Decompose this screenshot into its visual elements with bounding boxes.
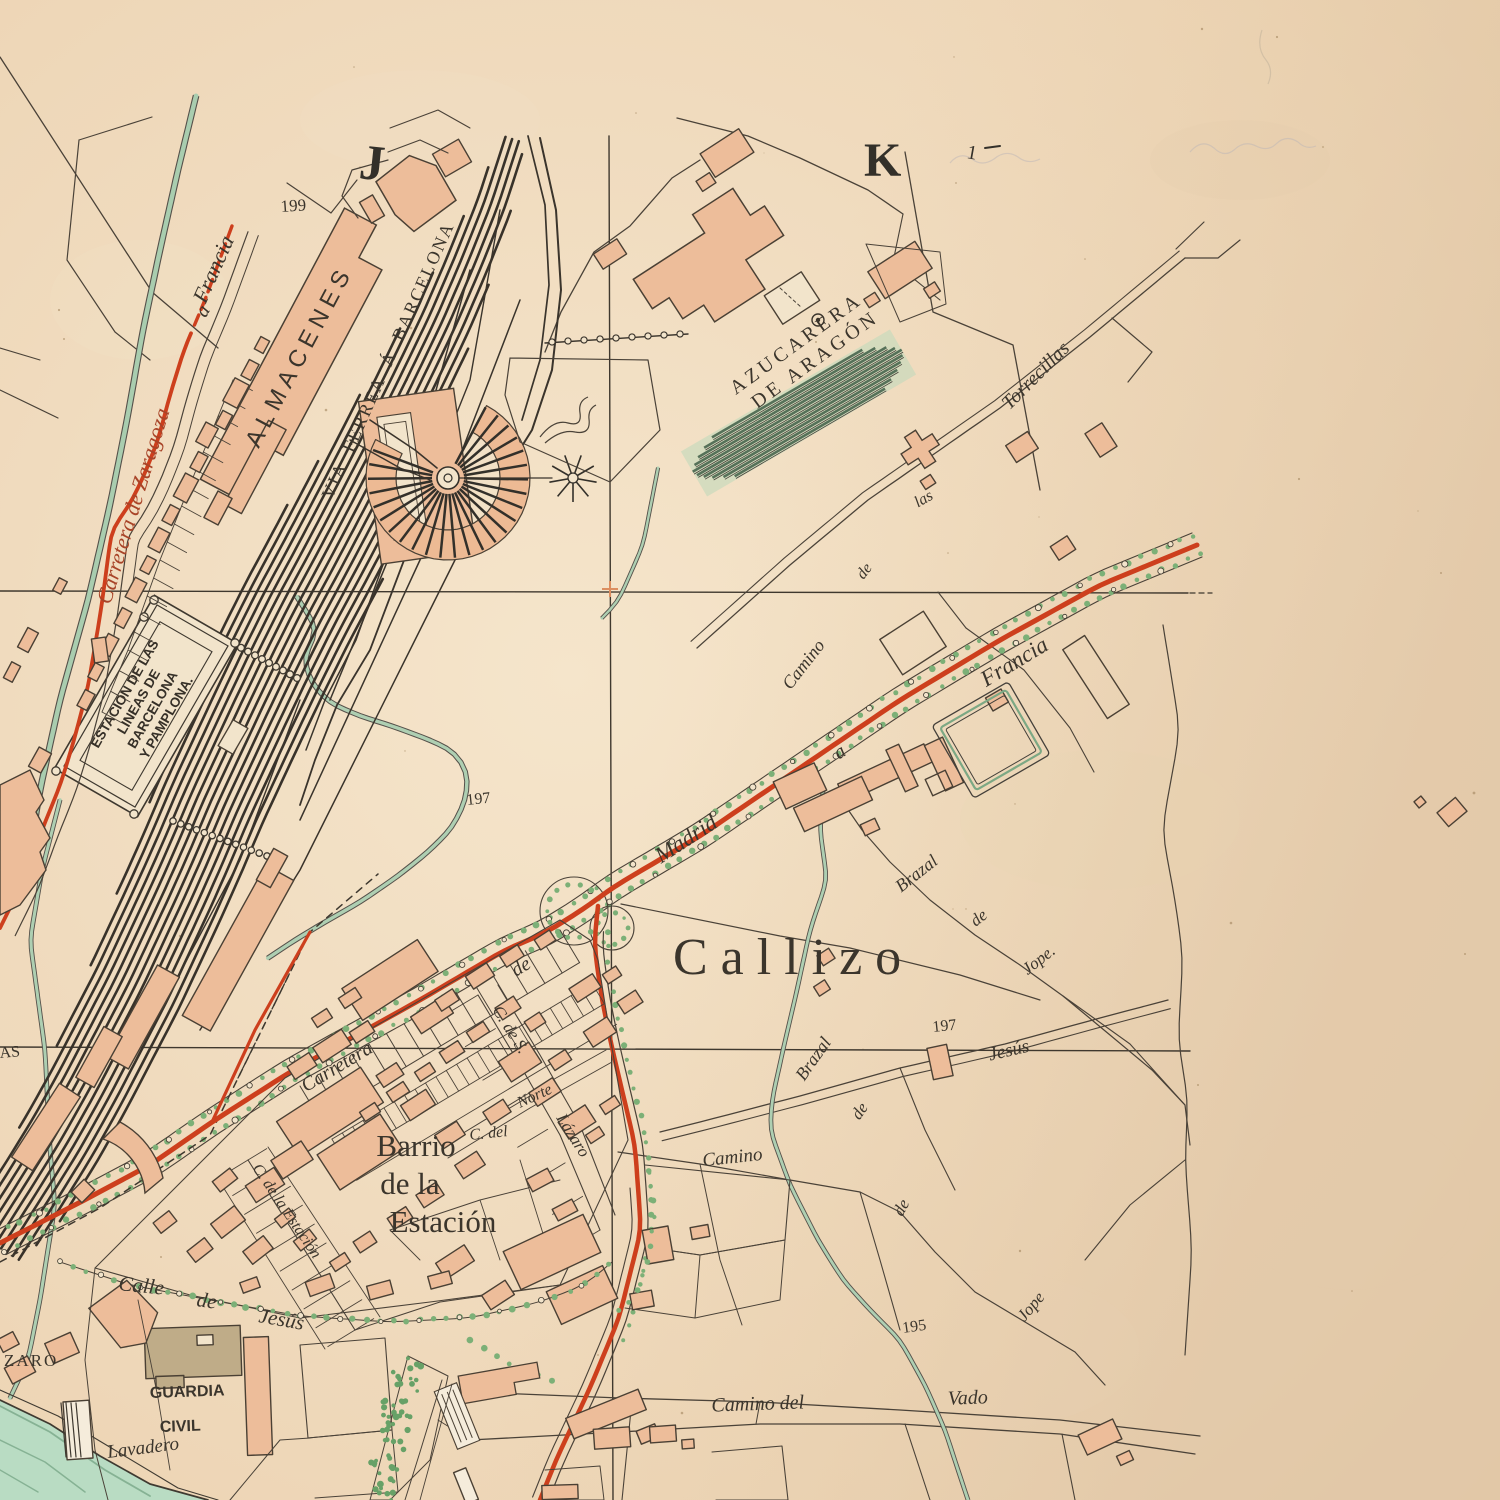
svg-text:Camino del: Camino del [711,1391,805,1416]
svg-text:de la: de la [380,1166,440,1201]
svg-text:CIVIL: CIVIL [160,1418,202,1436]
svg-text:197: 197 [466,790,492,809]
svg-text:AS: AS [0,1043,21,1062]
svg-text:199: 199 [280,195,307,216]
svg-text:Calle: Calle [117,1271,165,1300]
svg-text:197: 197 [932,1017,958,1036]
svg-text:ZARO: ZARO [4,1351,58,1370]
svg-text:Estación: Estación [390,1204,497,1239]
svg-text:GUARDIA: GUARDIA [150,1382,226,1402]
svg-text:Callizo: Callizo [673,929,914,986]
svg-text:K: K [864,134,901,187]
svg-text:Barrio: Barrio [376,1128,455,1163]
svg-text:de: de [195,1287,218,1314]
svg-text:195: 195 [901,1317,927,1337]
svg-text:Vado: Vado [947,1386,988,1409]
